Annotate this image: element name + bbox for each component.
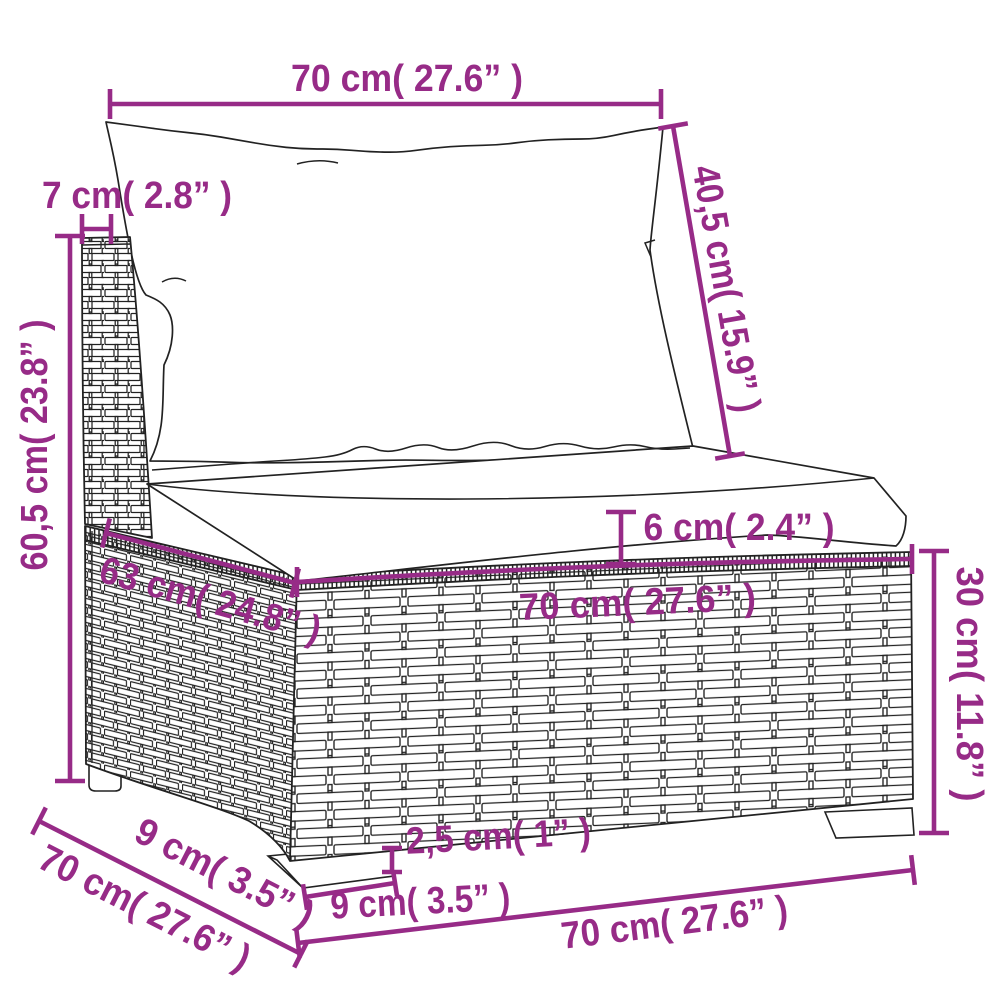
svg-text:6 cm( 2.4” ): 6 cm( 2.4” ) — [644, 507, 835, 549]
svg-text:60,5 cm( 23.8” ): 60,5 cm( 23.8” ) — [14, 320, 56, 571]
svg-text:30 cm( 11.8” ): 30 cm( 11.8” ) — [948, 567, 990, 802]
svg-text:70 cm( 27.6” ): 70 cm( 27.6” ) — [291, 58, 523, 100]
svg-text:7 cm( 2.8” ): 7 cm( 2.8” ) — [42, 175, 232, 217]
